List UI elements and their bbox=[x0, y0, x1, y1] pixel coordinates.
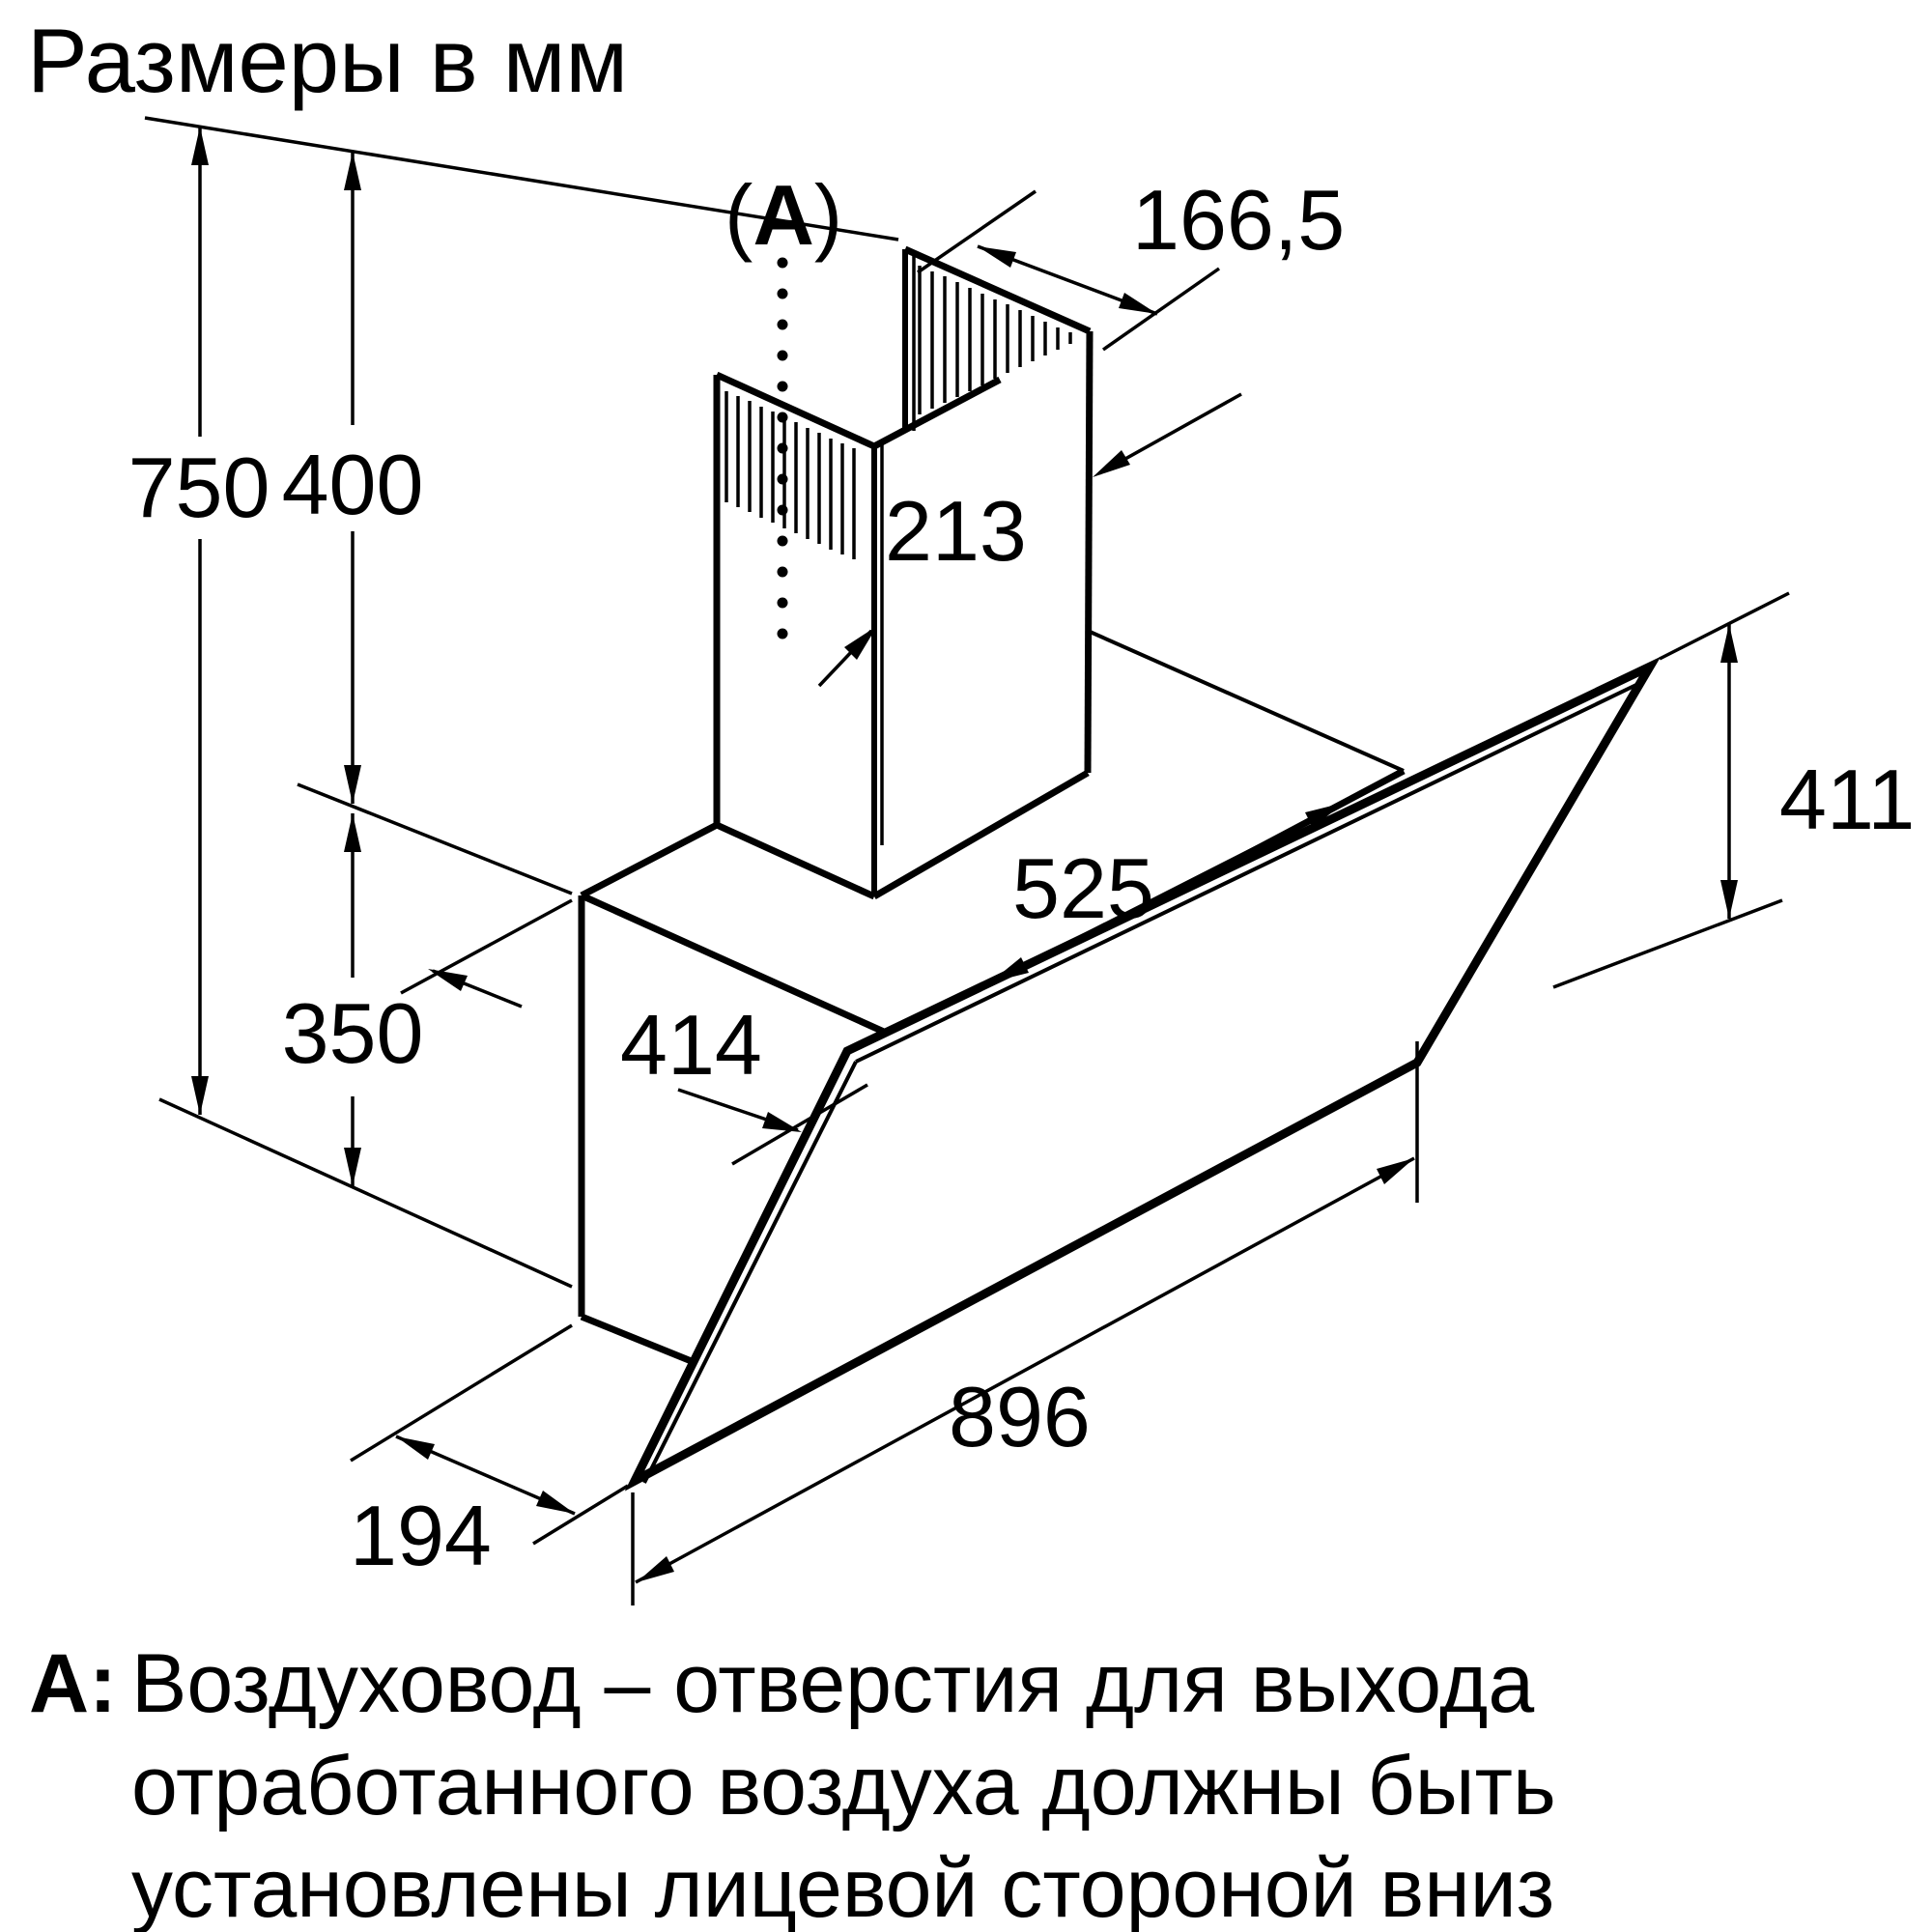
arrowhead-750-up bbox=[191, 127, 209, 165]
arrowhead-194-left bbox=[396, 1436, 435, 1460]
arrowhead-213-right bbox=[1093, 450, 1130, 477]
vent-slots-front bbox=[726, 391, 854, 559]
chimney-rear-right-edge bbox=[1088, 331, 1090, 773]
ext-duct-top-right bbox=[1103, 269, 1219, 350]
dim-label-525: 525 bbox=[1012, 840, 1154, 936]
arrowhead-896-right bbox=[1377, 1158, 1414, 1184]
arrowhead-350-up bbox=[344, 813, 361, 852]
arrowhead-400-down bbox=[344, 765, 361, 804]
dim-label-750: 750 bbox=[128, 440, 270, 535]
dim-label-166-5: 166,5 bbox=[1132, 172, 1345, 268]
arrowhead-194-right bbox=[536, 1491, 575, 1514]
dim-label-400: 400 bbox=[282, 437, 424, 532]
arrowhead-350-down bbox=[344, 1148, 361, 1186]
ext-body-top bbox=[298, 784, 572, 894]
arrowhead-166-right bbox=[1119, 293, 1157, 314]
hood-dimension-diagram: Размеры в мм (A) 166,5 400 750 213 525 4… bbox=[0, 0, 1932, 1932]
ext-depth-back bbox=[401, 900, 572, 993]
arrowhead-414-right bbox=[762, 1112, 802, 1132]
glass-panel bbox=[635, 667, 1650, 1483]
callout-paren-open: ( bbox=[724, 167, 753, 263]
glass-panel-outline bbox=[635, 667, 1650, 1481]
footnote-text-1: Воздуховод – отверстия для выхода bbox=[131, 1637, 1534, 1730]
arrowhead-896-left bbox=[637, 1556, 674, 1582]
body-top-right-depth-edge bbox=[1088, 631, 1404, 771]
page-title: Размеры в мм bbox=[27, 10, 628, 111]
chimney-base-left-edge bbox=[717, 825, 874, 896]
footnote: A:Воздуховод – отверстия для выхода отра… bbox=[29, 1637, 1556, 1932]
footnote-line-1: A:Воздуховод – отверстия для выхода bbox=[29, 1637, 1534, 1730]
dim-label-350: 350 bbox=[282, 985, 424, 1081]
body-bottom-left-edge bbox=[582, 1317, 694, 1362]
dim-label-414: 414 bbox=[620, 997, 762, 1093]
dim-label-411: 411 bbox=[1779, 752, 1915, 847]
callout-letter: A bbox=[753, 167, 814, 263]
body-wall-edge bbox=[582, 825, 717, 895]
footnote-line-2: отработанного воздуха должны быть bbox=[131, 1740, 1556, 1833]
callout-paren-close: ) bbox=[814, 167, 842, 263]
dim-label-194: 194 bbox=[350, 1488, 492, 1583]
arrowhead-750-down bbox=[191, 1076, 209, 1115]
callout-A-label: (A) bbox=[724, 167, 842, 263]
footnote-line-3: установлены лицевой стороной вниз bbox=[131, 1842, 1554, 1932]
arrowhead-400-up bbox=[344, 152, 361, 190]
arrowhead-414-left bbox=[428, 969, 468, 991]
chimney-front-top-right-edge bbox=[874, 380, 1000, 446]
arrowhead-166-left bbox=[978, 246, 1016, 268]
dim-label-896: 896 bbox=[949, 1369, 1091, 1464]
ext-bottom-left-corner bbox=[351, 1325, 572, 1461]
dim-label-213: 213 bbox=[885, 483, 1027, 579]
arrowhead-411-down bbox=[1720, 880, 1738, 919]
arrowhead-411-up bbox=[1720, 624, 1738, 663]
footnote-prefix: A: bbox=[29, 1637, 117, 1730]
ext-body-bottom bbox=[159, 1099, 572, 1287]
labels: Размеры в мм (A) 166,5 400 750 213 525 4… bbox=[27, 10, 1915, 1583]
callout-dotted-line bbox=[778, 258, 788, 639]
ext-glass-bottom-corner bbox=[1553, 900, 1782, 987]
